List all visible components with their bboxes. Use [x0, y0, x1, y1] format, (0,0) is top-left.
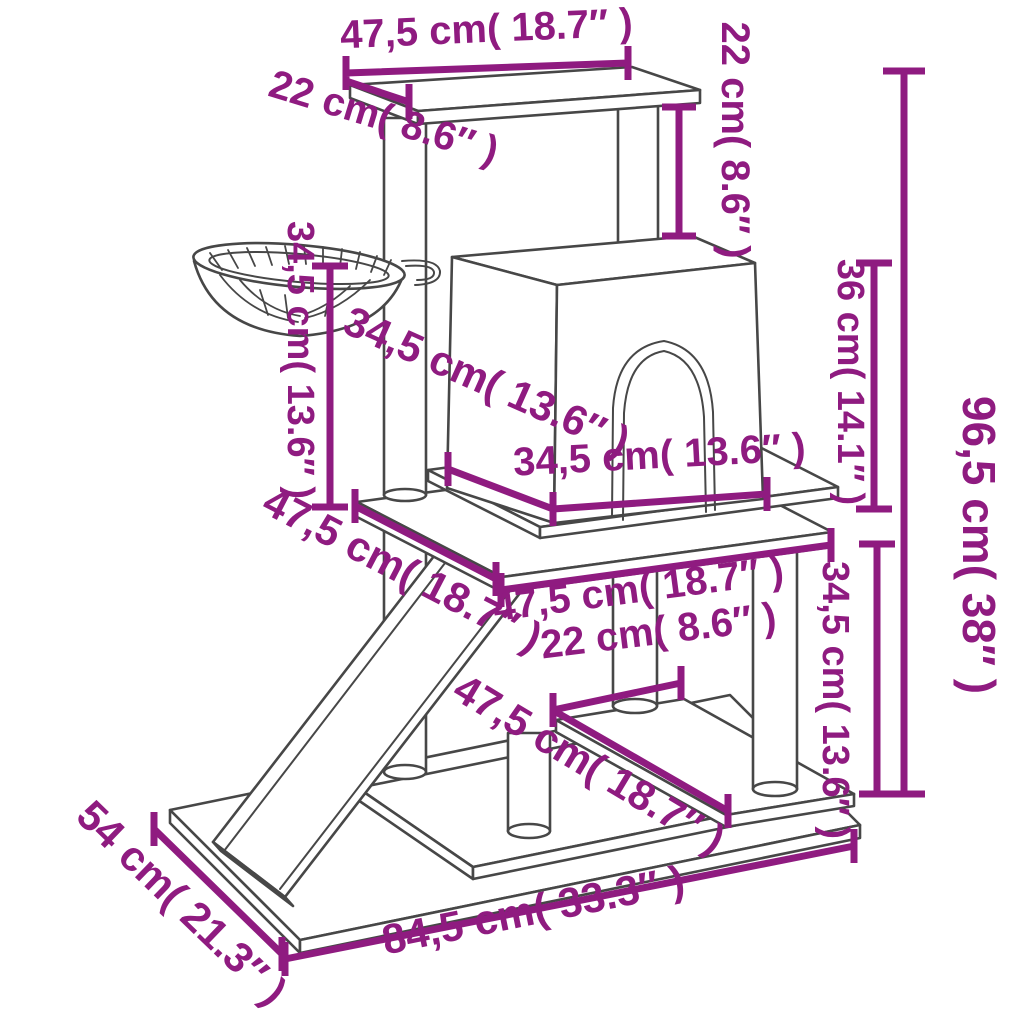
dim-label-platform-to-shelf: 34,5 cm( 13.6″ ) [814, 561, 856, 839]
dim-label-total-height: 96,5 cm( 38″ ) [953, 396, 1005, 694]
scratching-post-upper-right [618, 94, 658, 246]
dim-line-total-height [883, 71, 925, 794]
dim-label-basket-to-platform: 34,5 cm( 13.6″ ) [279, 221, 321, 499]
dimension-diagram: 47,5 cm( 18.7″ ) 22 cm( 8.6″ ) 22 cm( 8.… [0, 0, 1024, 1024]
dim-label-top-width: 47,5 cm( 18.7″ ) [339, 1, 633, 58]
dim-line-platform-to-shelf [859, 544, 895, 794]
dim-line-top-to-house [662, 107, 696, 236]
dim-label-top-to-house: 22 cm( 8.6″ ) [713, 21, 757, 258]
dim-label-house-height: 36 cm( 14.1″ ) [829, 259, 871, 505]
cat-tree-diagram-canvas: 47,5 cm( 18.7″ ) 22 cm( 8.6″ ) 22 cm( 8.… [0, 0, 1024, 1024]
scratching-post-upper-left [384, 118, 426, 501]
